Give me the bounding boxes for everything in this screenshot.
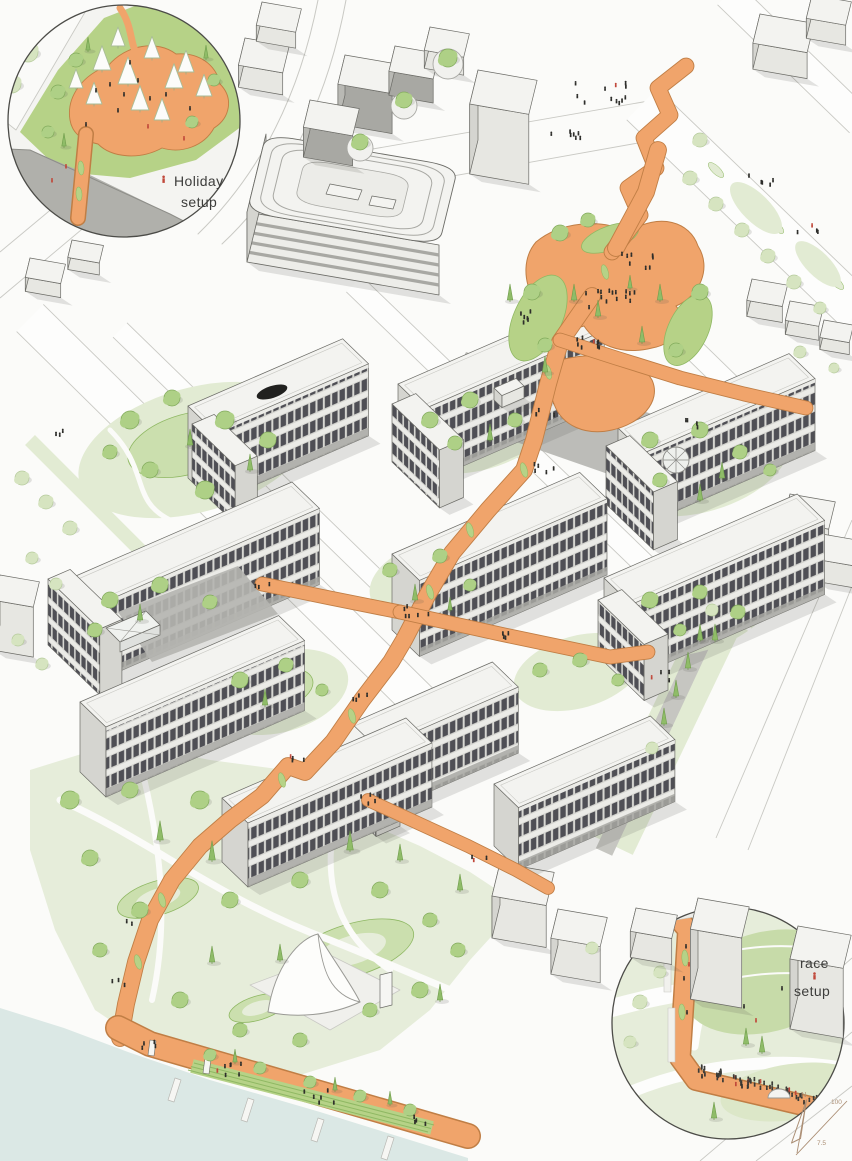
race-person-marker-icon (813, 972, 816, 979)
race-label-line1: race (800, 955, 829, 971)
scale-value-bottom: 7.5 (817, 1140, 826, 1147)
holiday-person-marker-icon (162, 176, 165, 183)
north-label: N (801, 1090, 806, 1099)
race-label-line2: setup (794, 983, 830, 999)
masterplan-canvas: Holiday setup race setup N 100 7.5 (0, 0, 852, 1161)
scale-value-top: 100 (831, 1099, 842, 1106)
site-plan-illustration: Holiday setup race setup N 100 7.5 (0, 0, 852, 1161)
generated-scene (0, 0, 852, 1161)
holiday-label-line1: Holiday (174, 173, 224, 189)
holiday-label-line2: setup (181, 194, 217, 210)
